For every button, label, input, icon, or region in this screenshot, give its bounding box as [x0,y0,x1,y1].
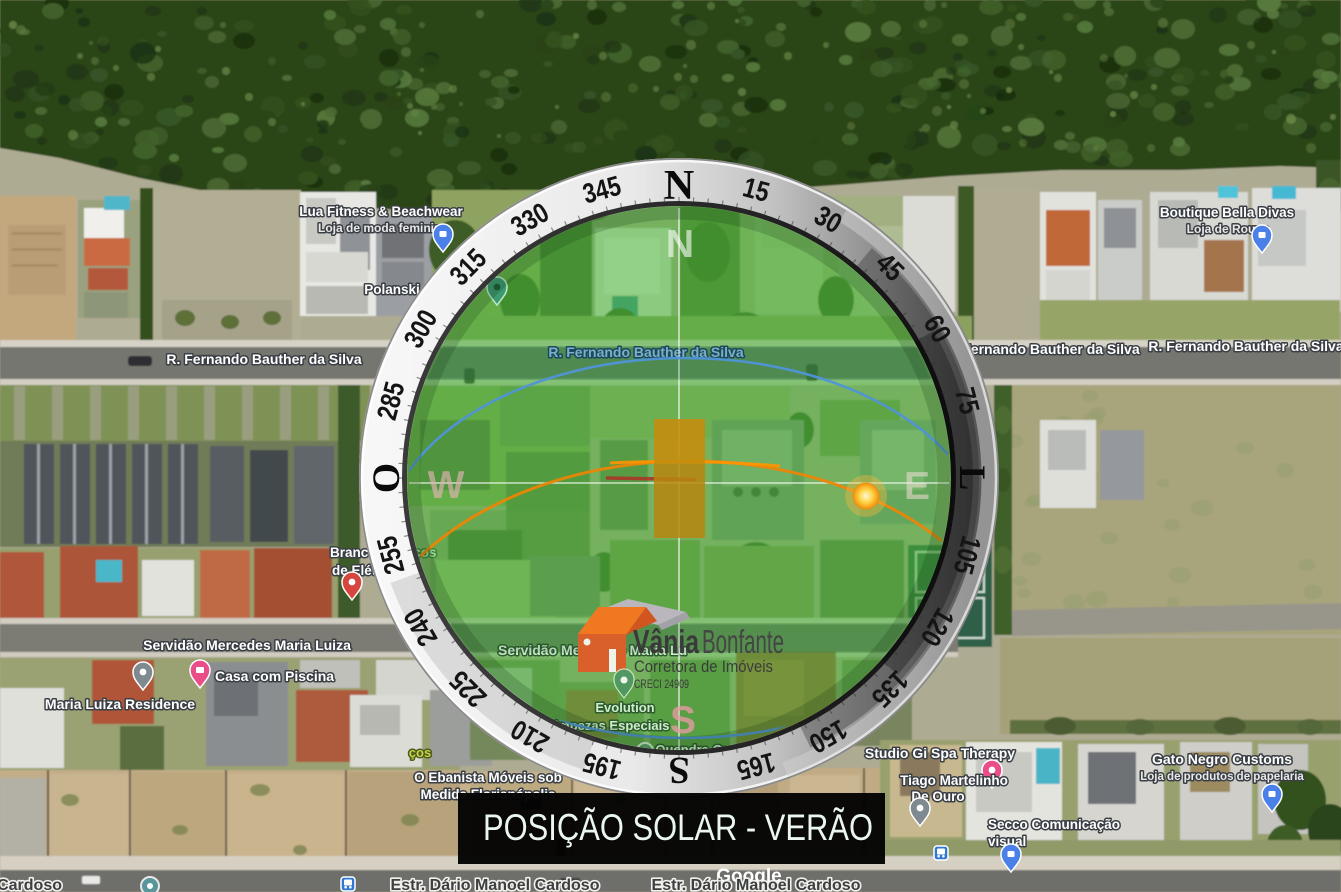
svg-text:Casa com Piscina: Casa com Piscina [215,668,334,684]
svg-text:S: S [668,749,689,791]
svg-text:Maria Luiza Residence: Maria Luiza Residence [45,696,195,712]
svg-text:Bonfante: Bonfante [702,623,784,660]
svg-text:Loja de produtos de papelaria: Loja de produtos de papelaria [1140,771,1304,783]
svg-text:Estr. Dário Manoel Cardoso: Estr. Dário Manoel Cardoso [391,877,600,892]
svg-text:Studio Gi Spa Therapy: Studio Gi Spa Therapy [865,745,1015,761]
svg-text:Loja de moda feminina: Loja de moda feminina [318,221,448,235]
svg-text:N: N [666,223,694,266]
svg-text:Secco Comunicação: Secco Comunicação [988,817,1120,832]
svg-text:ços: ços [409,745,431,760]
svg-text:Evolution: Evolution [595,700,654,715]
svg-text:L: L [951,466,992,491]
svg-text:Estr. Dário Manoel Cardoso: Estr. Dário Manoel Cardoso [652,877,861,892]
svg-text:E: E [904,465,930,508]
svg-text:Servidão Mercedes Maria Luiza: Servidão Mercedes Maria Luiza [143,637,351,653]
svg-text:O Ebanista Móveis sob: O Ebanista Móveis sob [414,770,562,785]
svg-text:Boutique Bella Divas: Boutique Bella Divas [1160,205,1294,220]
svg-text:Estr. Dário Manoel Cardoso: Estr. Dário Manoel Cardoso [0,877,62,892]
svg-text:Polanski: Polanski [364,282,420,297]
svg-text:R. Fernando Bauther da Silva: R. Fernando Bauther da Silva [1148,338,1341,354]
svg-text:N: N [664,163,694,209]
svg-text:Tiago Martelinho: Tiago Martelinho [900,773,1008,788]
svg-text:Gato Negro Customs: Gato Negro Customs [1152,751,1292,767]
svg-text:W: W [428,464,465,507]
svg-text:POSIÇÃO SOLAR - VERÃO: POSIÇÃO SOLAR - VERÃO [483,807,873,848]
svg-text:S: S [670,699,696,742]
svg-text:Lua Fitness & Beachwear: Lua Fitness & Beachwear [299,204,463,219]
svg-text:O: O [365,463,408,493]
svg-text:R. Fernando Bauther da Silva: R. Fernando Bauther da Silva [166,351,361,367]
svg-text:CRECI 24909: CRECI 24909 [634,677,689,691]
svg-text:Vânia: Vânia [633,623,699,660]
svg-text:Corretora de Imóveis: Corretora de Imóveis [634,657,773,676]
